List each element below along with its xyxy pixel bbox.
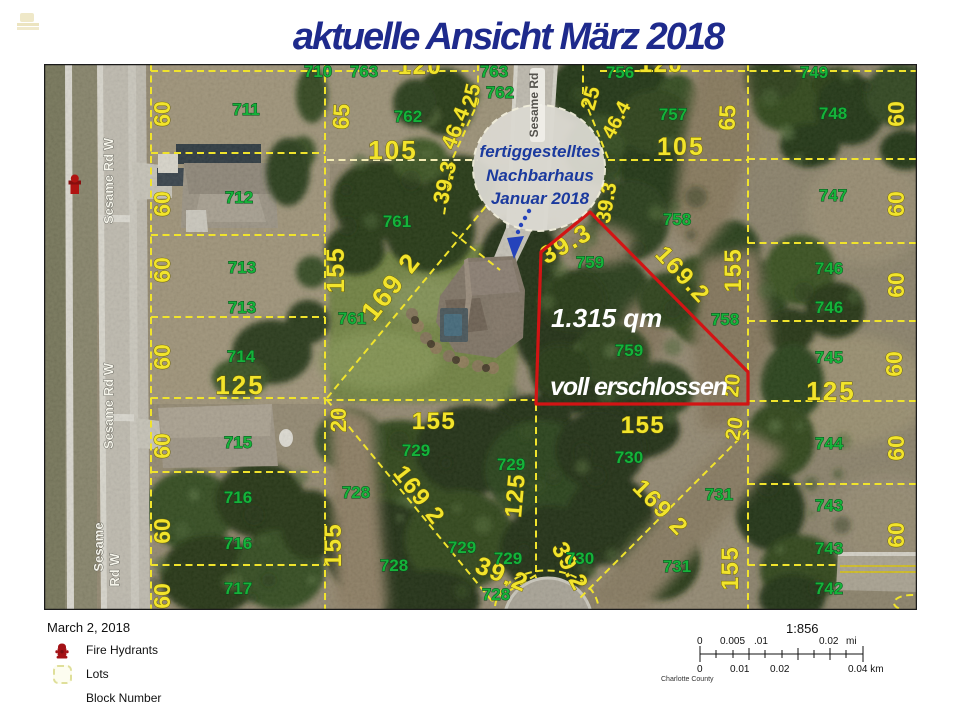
svg-text:731: 731 bbox=[705, 485, 733, 504]
svg-text:155: 155 bbox=[320, 523, 347, 568]
svg-text:60: 60 bbox=[149, 518, 175, 544]
svg-text:0: 0 bbox=[697, 664, 703, 675]
svg-text:60: 60 bbox=[883, 191, 909, 217]
svg-text:65: 65 bbox=[327, 103, 354, 130]
svg-text:105: 105 bbox=[657, 133, 705, 161]
svg-text:731: 731 bbox=[663, 557, 691, 576]
svg-text:125: 125 bbox=[215, 370, 264, 400]
svg-text:729: 729 bbox=[448, 538, 476, 557]
svg-text:742: 742 bbox=[815, 579, 843, 598]
svg-text:155: 155 bbox=[412, 408, 457, 435]
svg-text:716: 716 bbox=[224, 488, 252, 507]
svg-text:710: 710 bbox=[304, 64, 332, 81]
svg-text:Sesame Rd W: Sesame Rd W bbox=[101, 137, 116, 224]
svg-text:758: 758 bbox=[711, 310, 739, 329]
svg-text:60: 60 bbox=[149, 433, 175, 459]
svg-text:717: 717 bbox=[224, 579, 252, 598]
svg-text:105: 105 bbox=[368, 135, 417, 165]
svg-text:Sesame: Sesame bbox=[91, 522, 106, 571]
svg-text:1.315 qm: 1.315 qm bbox=[551, 303, 662, 333]
svg-text:Januar 2018: Januar 2018 bbox=[491, 189, 590, 208]
svg-text:155: 155 bbox=[621, 412, 666, 439]
svg-text:762: 762 bbox=[394, 107, 422, 126]
svg-text:747: 747 bbox=[819, 186, 847, 205]
svg-text:Rd W: Rd W bbox=[107, 553, 122, 587]
svg-text:759: 759 bbox=[576, 253, 604, 272]
svg-text:fertiggestelltes: fertiggestelltes bbox=[480, 142, 601, 161]
svg-text:0.02: 0.02 bbox=[770, 664, 790, 675]
svg-text:759: 759 bbox=[615, 341, 643, 360]
svg-text:60: 60 bbox=[149, 344, 175, 370]
svg-text:120: 120 bbox=[639, 64, 684, 78]
svg-text:729: 729 bbox=[402, 441, 430, 460]
svg-text:713: 713 bbox=[228, 258, 256, 277]
svg-text:Sesame Rd W: Sesame Rd W bbox=[101, 362, 116, 449]
svg-text:763: 763 bbox=[480, 64, 508, 81]
svg-text:728: 728 bbox=[342, 483, 370, 502]
svg-text:761: 761 bbox=[383, 212, 411, 231]
svg-text:746: 746 bbox=[815, 259, 843, 278]
svg-text:mi: mi bbox=[846, 636, 857, 647]
svg-text:125: 125 bbox=[806, 376, 855, 406]
svg-text:60: 60 bbox=[883, 522, 909, 548]
svg-text:Nachbarhaus: Nachbarhaus bbox=[486, 166, 594, 185]
svg-text:728: 728 bbox=[482, 585, 510, 604]
svg-text:748: 748 bbox=[819, 104, 847, 123]
svg-text:125: 125 bbox=[500, 472, 531, 519]
svg-text:60: 60 bbox=[149, 583, 175, 609]
svg-text:60: 60 bbox=[881, 351, 907, 377]
svg-text:715: 715 bbox=[224, 433, 252, 452]
svg-text:730: 730 bbox=[615, 448, 643, 467]
svg-text:757: 757 bbox=[659, 105, 687, 124]
svg-text:0.01: 0.01 bbox=[730, 664, 750, 675]
svg-text:729: 729 bbox=[494, 549, 522, 568]
svg-text:728: 728 bbox=[380, 556, 408, 575]
svg-text:756: 756 bbox=[606, 64, 634, 82]
svg-text:729: 729 bbox=[497, 455, 525, 474]
svg-text:745: 745 bbox=[815, 348, 843, 367]
svg-text:60: 60 bbox=[883, 435, 909, 461]
svg-text:60: 60 bbox=[149, 257, 175, 283]
svg-text:713: 713 bbox=[228, 298, 256, 317]
svg-text:743: 743 bbox=[815, 496, 843, 515]
svg-text:.01: .01 bbox=[754, 636, 768, 647]
svg-text:716: 716 bbox=[224, 534, 252, 553]
svg-text:60: 60 bbox=[149, 101, 175, 127]
svg-text:155: 155 bbox=[322, 247, 350, 293]
svg-text:Sesame Rd: Sesame Rd bbox=[527, 73, 541, 138]
svg-text:155: 155 bbox=[720, 248, 747, 293]
svg-text:743: 743 bbox=[815, 539, 843, 558]
svg-text:60: 60 bbox=[149, 191, 175, 217]
svg-text:711: 711 bbox=[232, 100, 259, 119]
svg-text:714: 714 bbox=[227, 347, 256, 366]
svg-text:voll erschlossen: voll erschlossen bbox=[550, 373, 728, 401]
svg-text:20: 20 bbox=[326, 408, 351, 432]
svg-text:65: 65 bbox=[714, 104, 741, 131]
svg-text:155: 155 bbox=[717, 546, 744, 591]
svg-text:746: 746 bbox=[815, 298, 843, 317]
svg-text:730: 730 bbox=[566, 549, 594, 568]
svg-text:762: 762 bbox=[486, 83, 514, 102]
svg-text:120: 120 bbox=[398, 64, 443, 80]
svg-text:0.02: 0.02 bbox=[819, 636, 839, 647]
svg-text:20: 20 bbox=[721, 415, 748, 442]
svg-text:60: 60 bbox=[883, 272, 909, 298]
svg-text:758: 758 bbox=[663, 210, 691, 229]
svg-text:749: 749 bbox=[800, 64, 828, 82]
svg-text:0: 0 bbox=[697, 636, 703, 647]
svg-text:60: 60 bbox=[883, 101, 909, 127]
svg-text:712: 712 bbox=[225, 188, 253, 207]
svg-text:0.04 km: 0.04 km bbox=[848, 664, 884, 675]
svg-text:744: 744 bbox=[815, 434, 844, 453]
svg-text:0.005: 0.005 bbox=[720, 636, 745, 647]
svg-text:761: 761 bbox=[338, 309, 366, 328]
svg-text:763: 763 bbox=[350, 64, 378, 81]
